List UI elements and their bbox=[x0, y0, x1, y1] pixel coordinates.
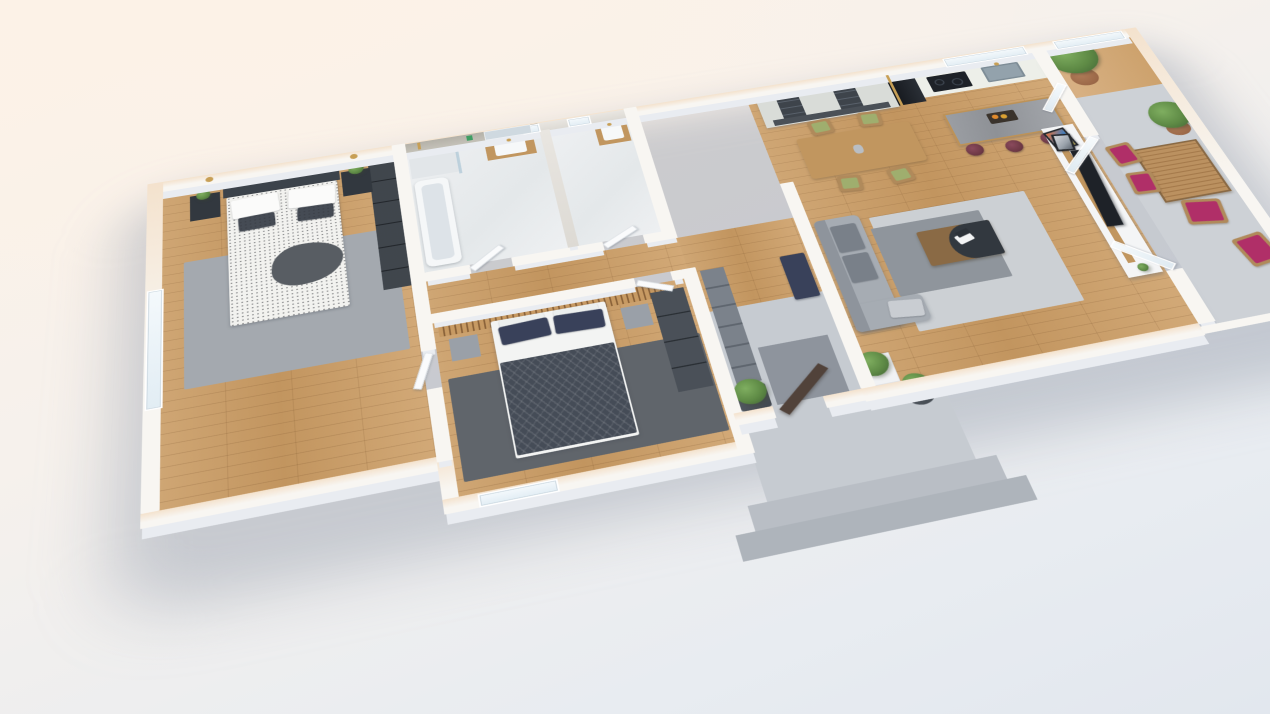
apartment-3d-render bbox=[0, 0, 1270, 714]
dining-chair-3 bbox=[836, 174, 864, 192]
bedroom2-top-wall-b bbox=[670, 270, 684, 281]
perspective-wrapper bbox=[0, 0, 1270, 714]
master-window bbox=[144, 289, 163, 412]
floor-plan bbox=[139, 27, 1270, 591]
dining-chair-2 bbox=[856, 111, 884, 127]
sofa-blanket bbox=[887, 299, 925, 319]
shower-dispenser bbox=[466, 135, 473, 141]
